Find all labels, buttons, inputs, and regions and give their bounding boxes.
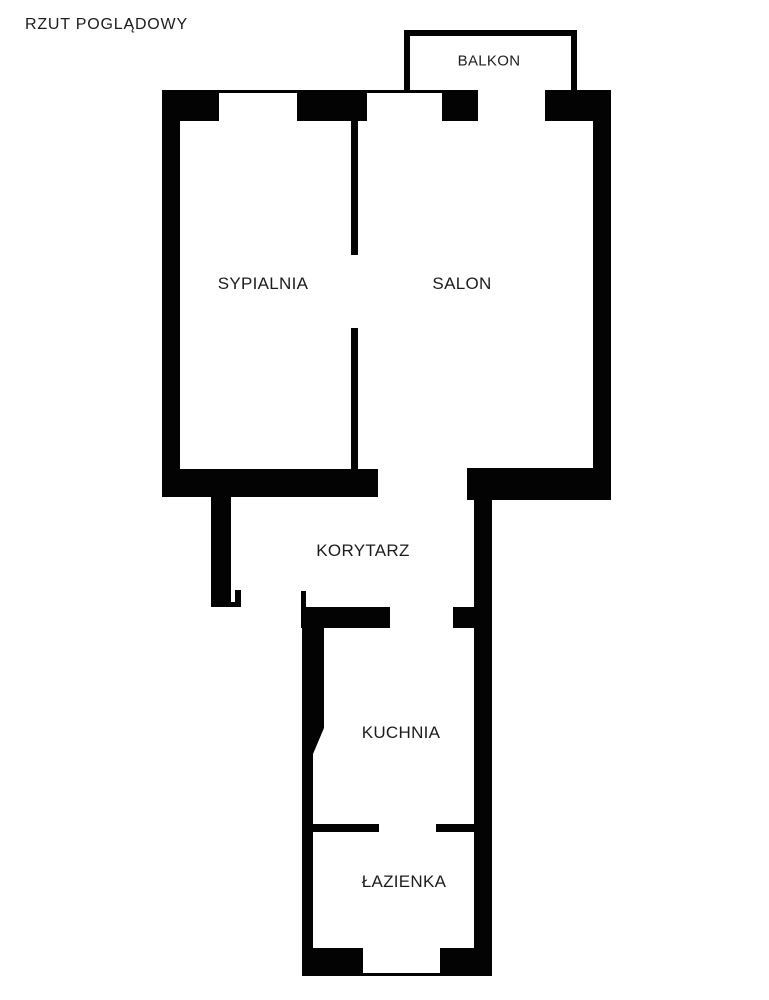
balkon-east-wall: [571, 36, 577, 93]
east-wall-upper: [593, 121, 611, 468]
sypialnia-salon-wall-upper: [351, 121, 358, 255]
top-wall-mid: [297, 93, 367, 121]
room-label-lazienka: ŁAZIENKA: [362, 872, 447, 892]
sypialnia-south-wall: [162, 469, 378, 497]
salon-south-wall: [467, 468, 611, 500]
sypialnia-salon-wall-lower: [351, 328, 358, 470]
balkon-north-wall: [404, 30, 577, 36]
balkon-west-wall: [404, 36, 410, 93]
kuchnia-lazienka-wall-west: [313, 824, 379, 832]
walls-layer: [0, 0, 769, 1000]
room-label-sypialnia: SYPIALNIA: [218, 274, 309, 294]
kuchnia-lazienka-wall-east: [436, 824, 474, 832]
kuchnia-north-wall-stub: [453, 607, 474, 628]
east-wall-lower: [474, 500, 492, 976]
lazienka-south-outer-edge: [302, 973, 492, 976]
lazienka-south-wall-east: [440, 948, 492, 973]
top-wall-east: [545, 93, 611, 121]
floorplan-canvas: RZUT POGLĄDOWY BALKON SYPIALNIA SALON KO…: [0, 0, 769, 1000]
west-wall: [162, 121, 180, 497]
lazienka-south-wall-west: [302, 948, 363, 973]
top-wall-west: [162, 93, 219, 121]
room-label-salon: SALON: [432, 274, 491, 294]
kuchnia-west-wall-notch: [302, 728, 324, 754]
top-wall-balcony-left: [442, 93, 478, 121]
entry-jamb-right: [301, 591, 306, 607]
korytarz-west-wall: [211, 497, 231, 607]
kuchnia-west-wall-upper: [302, 628, 324, 728]
kuchnia-north-wall: [301, 607, 390, 628]
entry-jamb-left: [235, 590, 241, 607]
room-label-korytarz: KORYTARZ: [316, 541, 409, 561]
west-wall-lower: [302, 754, 313, 976]
room-label-balkon: BALKON: [458, 53, 521, 70]
room-label-kuchnia: KUCHNIA: [362, 723, 441, 743]
